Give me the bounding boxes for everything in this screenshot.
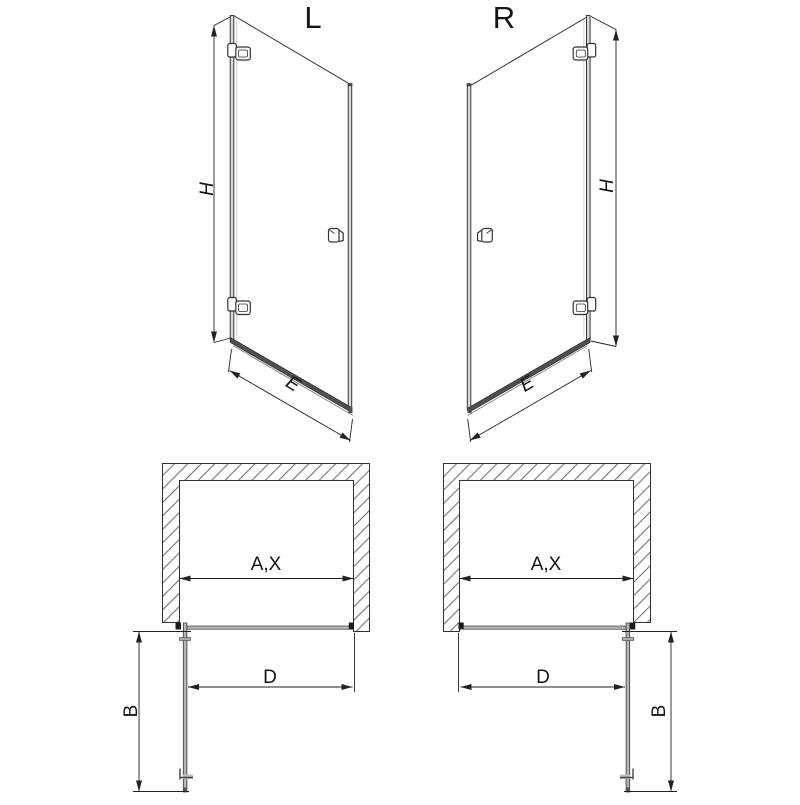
dim-label-depth-left: B xyxy=(121,705,142,718)
handle-side-face xyxy=(478,230,482,242)
wall-profile-left xyxy=(459,623,464,630)
top-view-right: A,X B D xyxy=(444,464,678,793)
top-hinge-side-plate xyxy=(587,44,596,58)
dim-label-depth-right: B xyxy=(649,705,670,718)
door-perspective-left: L H xyxy=(197,0,353,442)
bottom-profile xyxy=(469,338,590,413)
edge-top-cap xyxy=(348,83,353,86)
extension-line xyxy=(468,419,471,442)
extension-line xyxy=(589,349,592,372)
wall-profile-right xyxy=(349,623,354,630)
variant-label-left: L xyxy=(304,0,321,35)
open-door-plan xyxy=(180,623,194,792)
fixed-front-profile xyxy=(463,626,626,629)
edge-top-cap xyxy=(467,83,472,86)
dimension-height-right: H xyxy=(591,17,618,347)
dimension-opening-width-left: A,X xyxy=(180,554,354,579)
dim-label-height-left: H xyxy=(197,182,218,196)
hinge-bracket xyxy=(623,638,634,641)
dimension-height-left: H xyxy=(197,17,231,343)
handle-shade xyxy=(620,775,630,780)
bottom-hinge xyxy=(573,298,596,315)
dim-label-opening-width-right: A,X xyxy=(531,554,562,575)
dim-label-opening-width-left: A,X xyxy=(251,554,282,575)
handle-shade xyxy=(183,775,193,780)
dim-label-bottom-width-right: E xyxy=(516,372,538,397)
door-leaf xyxy=(626,623,630,792)
glass-handle-edge xyxy=(467,85,471,411)
door-handle xyxy=(478,229,493,243)
top-hinge xyxy=(573,44,596,61)
extension-line xyxy=(214,338,231,343)
variant-label-right: R xyxy=(493,0,515,35)
extension-line xyxy=(229,349,232,372)
wall-profile-left xyxy=(176,623,182,630)
extension-line xyxy=(350,419,353,442)
dimension-bottom-width-right: E xyxy=(468,349,592,442)
door-perspective-right: R H xyxy=(467,0,618,442)
dim-label-door-width-right: D xyxy=(536,667,550,688)
door-leaf xyxy=(183,623,187,792)
top-hinge-front-plate xyxy=(236,47,251,60)
top-hinge xyxy=(228,44,251,61)
drawing-canvas: L H xyxy=(0,0,800,800)
top-hinge-side-plate xyxy=(228,44,237,58)
glass-hinge-edge xyxy=(230,16,234,340)
extension-line xyxy=(591,341,616,347)
open-door-plan xyxy=(620,623,634,792)
glass-handle-edge xyxy=(348,85,352,411)
dimension-door-width-right: D xyxy=(459,633,626,692)
wall-profile-right xyxy=(630,623,636,630)
extension-line xyxy=(591,17,616,30)
dimension-bottom-width-left: E xyxy=(229,349,353,442)
extension-line xyxy=(214,17,231,26)
dim-label-height-right: H xyxy=(597,179,618,193)
top-view-left: A,X B D xyxy=(121,464,370,793)
handle-side-face xyxy=(339,230,343,242)
hinge-bracket xyxy=(180,638,191,641)
dimension-opening-width-right: A,X xyxy=(460,554,634,579)
dimension-depth-right: B xyxy=(622,632,677,792)
bottom-profile-cap xyxy=(348,407,352,413)
bottom-hinge-side-plate xyxy=(228,298,237,312)
bottom-hinge-front-plate xyxy=(236,301,251,315)
bottom-profile-cap xyxy=(468,407,472,413)
glass-hinge-edge xyxy=(587,16,591,340)
dim-label-door-width-left: D xyxy=(263,667,277,688)
glass-top-edge xyxy=(234,16,352,86)
bottom-hinge-side-plate xyxy=(587,298,596,312)
dimension-depth-left: B xyxy=(121,632,191,792)
dimension-door-width-left: D xyxy=(188,633,355,692)
shower-door-technical-drawing: L H xyxy=(0,0,800,800)
fixed-front-profile xyxy=(187,626,350,629)
glass-top-edge xyxy=(471,16,589,86)
wall-section xyxy=(444,464,651,632)
door-handle xyxy=(329,229,344,243)
wall-section xyxy=(163,464,370,632)
